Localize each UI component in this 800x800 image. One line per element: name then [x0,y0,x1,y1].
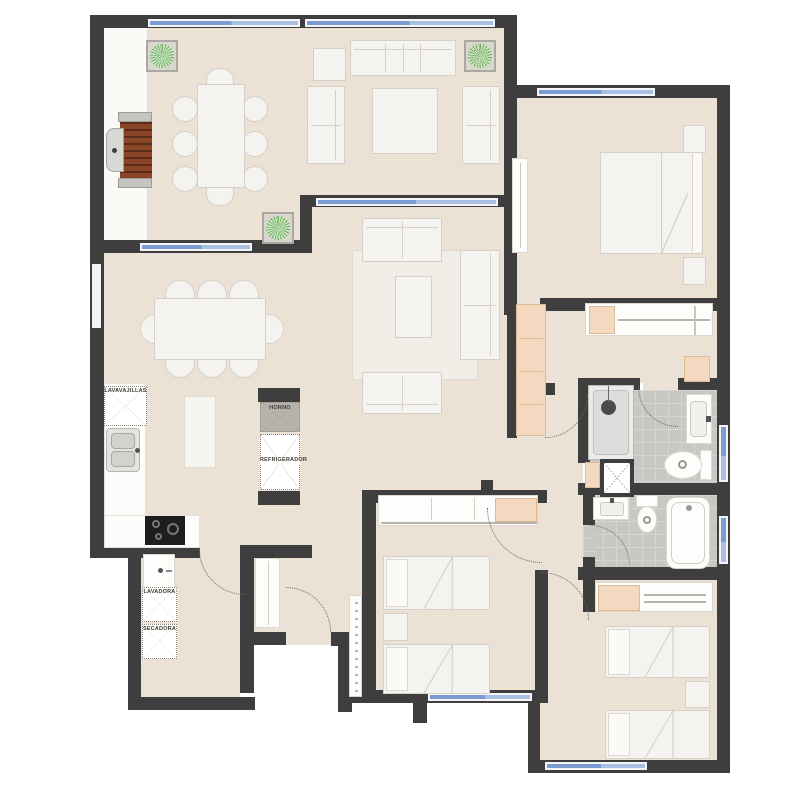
wall-bedroom2-stub [413,703,427,723]
window-bathroom2 [719,516,728,564]
living-coffee-table [395,276,432,338]
window-bedroom3 [545,762,647,770]
burner [155,533,162,540]
faucet [135,448,140,453]
bath1-vanity [686,394,712,444]
bathtub [666,497,710,569]
basin [600,502,624,516]
dresser-line [520,163,521,248]
wall-right-lower [717,595,730,773]
plant-leaves [468,44,492,68]
wall-entry-door-left [240,632,286,645]
shower-drain [601,400,616,415]
kitchen-island [184,396,216,468]
window-glass [539,90,653,94]
bbq-grill [106,110,154,190]
wall-connector [300,195,312,253]
nightstand [683,125,706,153]
closet-line [268,561,269,625]
seat-divider [420,44,421,72]
plant-leaves [150,44,174,68]
closet-rod [618,319,710,321]
terrace-loveseat-right [462,86,500,164]
seat-divider [385,44,386,72]
closet-top-band [585,303,713,336]
bath2-toilet [634,495,660,535]
chair [172,166,198,192]
master-bed [600,152,703,254]
bedroom2-bed-2 [383,644,490,694]
window-glass [142,245,250,249]
plant-leaves [266,216,290,240]
closet-cabinet [589,306,615,334]
closet-divider [431,498,432,520]
wall-laundry-bottom [128,697,255,710]
chair [242,96,268,122]
kitchen-sink [106,428,140,472]
tub-faucet [686,505,692,511]
refrigerator-label: REFRIGERADOR [260,458,300,464]
faucet [706,416,711,422]
dishwasher-label: LAVAVAJILLAS [104,389,147,395]
grill-body [120,122,152,178]
wall-laundry-left [128,548,141,710]
grill-cap-top [118,112,152,122]
shower [588,385,634,460]
chair [172,131,198,157]
vent-panel-left-wall [92,264,101,328]
headboard [692,154,701,252]
nightstand [685,681,710,708]
walkin-wardrobe [516,304,546,436]
terrace-coffee-table [372,88,438,154]
nightstand [383,613,408,641]
plant-terrace-2 [464,40,496,72]
chair [242,131,268,157]
burner [167,523,179,535]
window-bedroom2 [428,693,532,701]
grill-cap-bottom [118,178,152,188]
bedroom3-bed-2 [605,710,710,759]
closet-rod [644,601,706,603]
living-sofa-bottom [362,372,442,414]
window-bathroom1 [719,425,728,482]
closet-divider [474,498,475,520]
bath1-toilet [664,448,712,482]
window-terrace-top-2 [305,19,495,27]
nightstand [683,257,706,285]
closet-cabinet [598,585,640,611]
faucet-handle [166,570,172,572]
window-terrace-dining [140,243,252,251]
closet-right [684,356,710,382]
bedroom3-bed-1 [605,626,710,678]
dining-table [154,298,266,360]
terrace-loveseat-left [307,86,345,164]
shelf-line [519,404,543,405]
closet-panel [694,306,696,335]
window-glass [318,200,496,204]
plant-terrace-1 [146,40,178,72]
entry-closet [255,558,280,628]
living-sofa-right [460,250,500,360]
sink-bowl [111,451,135,467]
wall-bedroom2-left [362,493,376,703]
window-glass [307,21,493,25]
shelf-line [519,338,543,339]
chair [242,166,268,192]
window-living-slider [316,198,498,206]
bedroom3-closet [595,582,713,612]
faucet [158,568,163,573]
window-terrace-top-1 [148,19,300,27]
wall-left-upper [90,15,104,255]
basin [690,401,707,437]
wall-bath2-bedroom3 [578,567,730,580]
floor-plan: LAVAVAJILLAS HORNO REFRIGERADOR LAVADORA… [0,0,800,800]
wall-oven-top [258,388,300,402]
window-glass [150,21,298,25]
shelf-line [519,371,543,372]
burner [152,520,160,528]
bath2-vanity [593,497,629,520]
toilet-drain [678,460,687,469]
closet-rod [644,594,706,596]
grill-knob [112,148,117,153]
shaft-filler [585,462,600,488]
wall-oven-bottom [258,491,300,505]
window-glass [430,695,530,699]
terrace-sofa-3seat [350,40,456,76]
duct-shaft [600,459,634,497]
window-master-bedroom [537,88,655,96]
bedroom2-bed-1 [383,556,490,610]
wall-hall-stub [481,480,493,492]
window-panel-bedroom2-left [349,595,362,697]
tub-inner [671,502,705,564]
bedroom3-door-gap [583,612,595,690]
sink-bowl [111,433,135,449]
shower-hose [608,386,609,402]
cooktop [145,516,185,545]
plant-terrace-3 [262,212,294,244]
master-dresser [512,158,528,253]
terrace-dining-table [197,84,245,188]
window-glass [721,427,726,480]
chair [172,96,198,122]
washer-label: LAVADORA [142,590,177,596]
toilet-drain [643,516,651,524]
living-sofa-top [362,218,442,262]
window-glass [547,764,645,768]
laundry-sink [143,554,175,588]
window-glass [721,518,726,562]
entry-door-gap [286,632,331,645]
terrace-side-table [313,48,346,81]
dryer-label: SECADORA [142,627,177,633]
window-panel-line [355,602,358,692]
oven-label: HORNO [260,406,300,412]
faucet [610,498,614,503]
